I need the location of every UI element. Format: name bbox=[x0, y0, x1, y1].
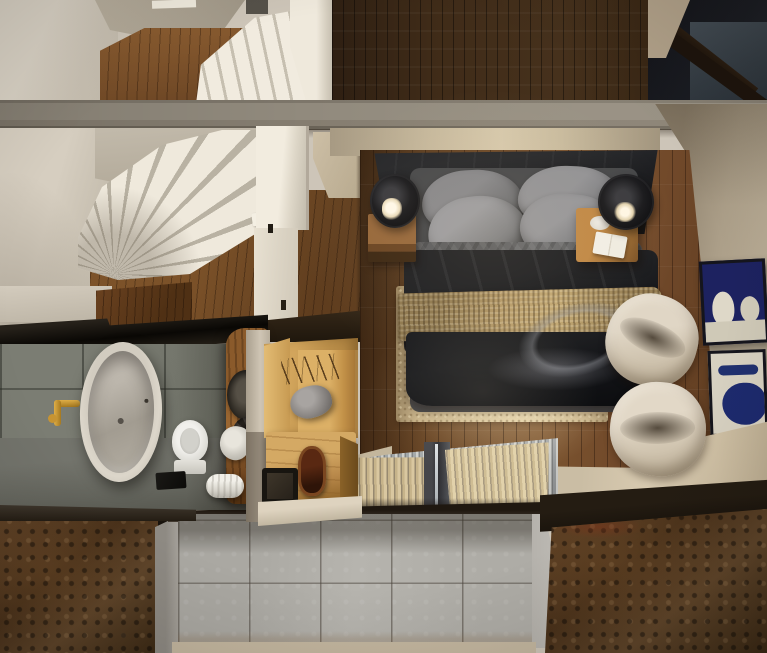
lounge-chair-front bbox=[606, 378, 710, 480]
apartment-top-down-render bbox=[0, 0, 767, 653]
chair-seam bbox=[619, 411, 694, 444]
chair-seam bbox=[614, 309, 691, 366]
lounge-chairs bbox=[0, 0, 767, 653]
lounge-chair-back bbox=[596, 284, 708, 396]
